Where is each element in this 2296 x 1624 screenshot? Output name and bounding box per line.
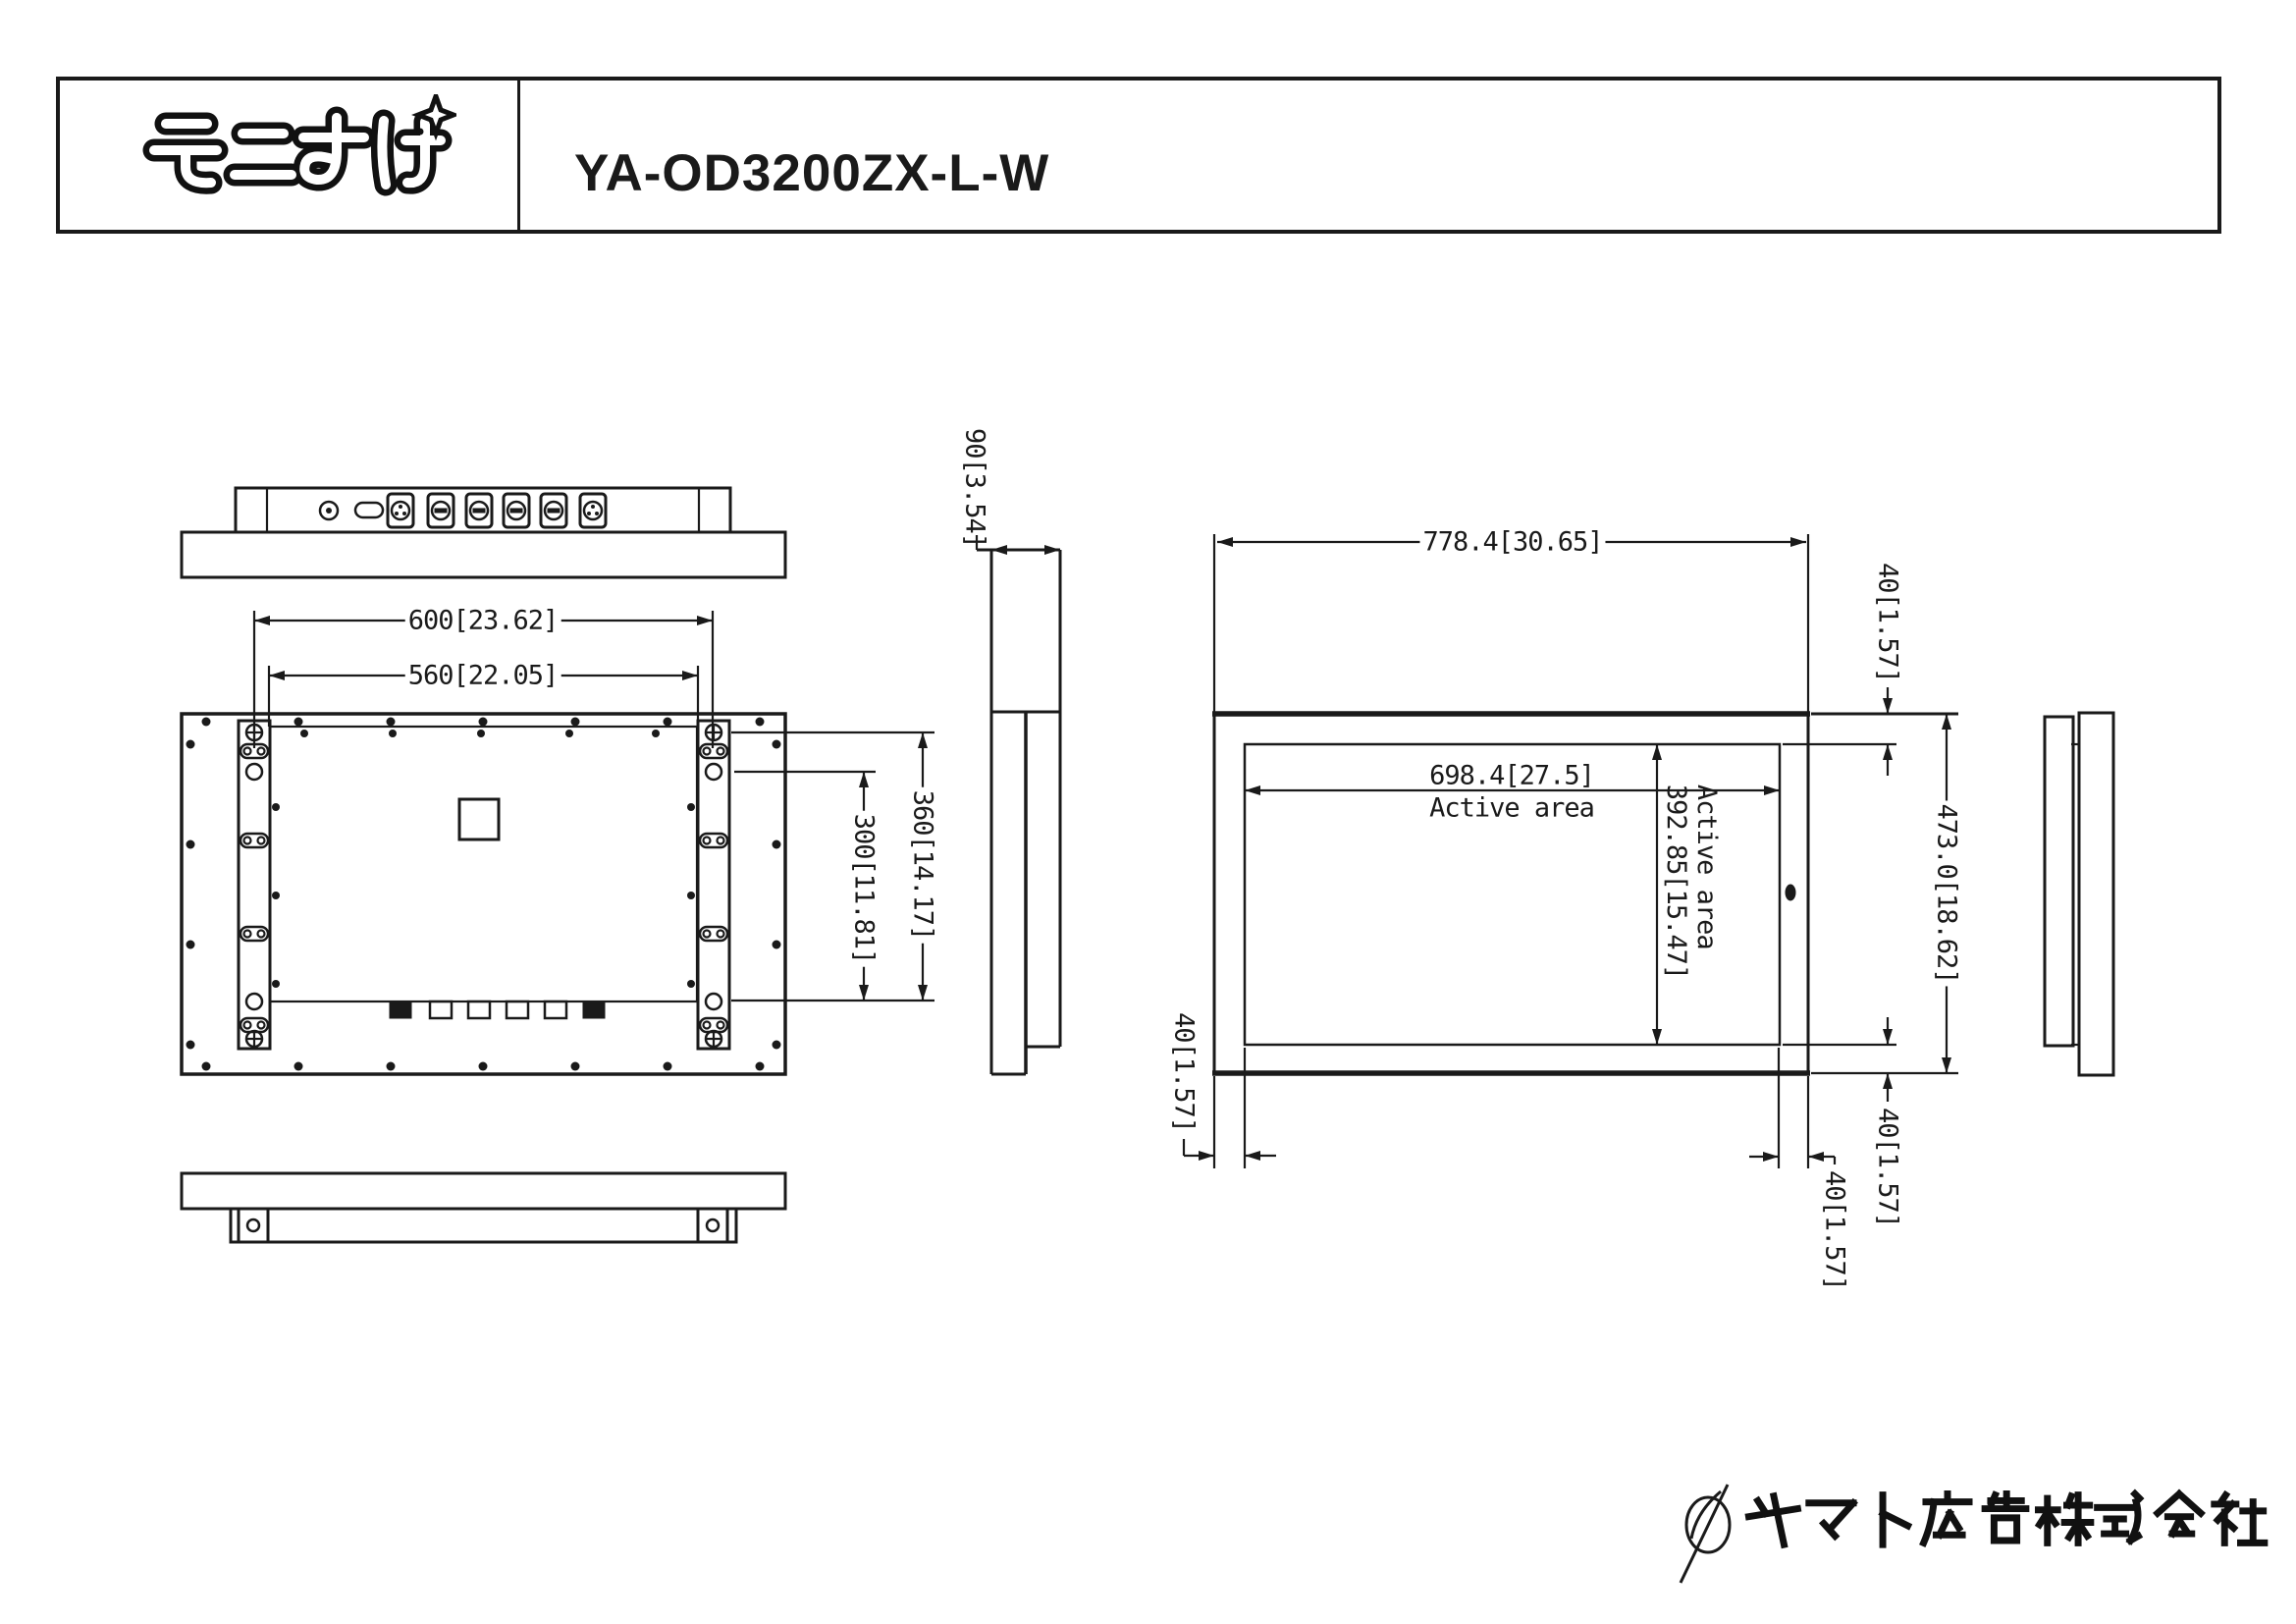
vesa-square xyxy=(459,799,499,839)
dim-label-392-block: Active area392.85[15.47] xyxy=(1661,782,1722,982)
led-window xyxy=(355,503,383,517)
dim-778 xyxy=(1214,534,1808,714)
dim-bezel-bottom xyxy=(1783,1017,1896,1102)
dim-label-40-top: 40[1.57] xyxy=(1872,560,1902,685)
dim-label-560: 560[22.05] xyxy=(405,660,561,690)
rail-hardware-left xyxy=(240,725,268,1047)
ir-sensor-icon xyxy=(1786,885,1795,900)
dim-label-40-right: 40[1.57] xyxy=(1819,1167,1849,1293)
connector-socket-6 xyxy=(580,494,606,527)
connector-socket-2 xyxy=(428,494,454,527)
rail-hardware-right xyxy=(700,725,727,1047)
dim-label-600: 600[23.62] xyxy=(405,605,561,635)
rear-view xyxy=(182,714,785,1074)
connector-socket-4 xyxy=(504,494,529,527)
company-name-glyphs xyxy=(1748,1493,2264,1544)
mount-rail-left xyxy=(239,721,270,1049)
connector-socket-5 xyxy=(541,494,566,527)
company-logo xyxy=(1681,1485,2265,1583)
dim-bezel-top xyxy=(1783,687,1896,776)
dim-label-473: 473.0[18.62] xyxy=(1931,800,1961,986)
active-area-width-label: Active area xyxy=(1426,792,1597,823)
dim-label-40-bottom: 40[1.57] xyxy=(1872,1105,1902,1230)
rear-connector-row xyxy=(390,1001,605,1018)
connector-socket-3 xyxy=(466,494,492,527)
dim-label-778: 778.4[30.65] xyxy=(1419,526,1605,557)
drawing-sheet: モニすけ YA-OD3200ZX-L-W xyxy=(0,0,2296,1624)
dim-label-300: 300[11.81] xyxy=(848,811,879,967)
dim-label-40-left: 40[1.57] xyxy=(1168,1009,1199,1135)
top-view xyxy=(182,488,785,577)
bottom-view xyxy=(182,1173,785,1242)
dim-label-90: 90[3.54] xyxy=(959,425,989,551)
dim-label-698: 698.4[27.5] xyxy=(1426,760,1597,790)
active-area-height-label: Active area xyxy=(1691,785,1722,979)
dim-label-392: 392.85[15.47] xyxy=(1661,785,1691,979)
company-mark-icon xyxy=(1681,1485,1730,1583)
mount-rail-right xyxy=(698,721,729,1049)
dim-label-360: 360[14.17] xyxy=(907,787,937,944)
right-side-view xyxy=(2045,713,2113,1075)
side-view xyxy=(977,535,1060,1074)
connector-socket-1 xyxy=(388,494,413,527)
dim-bezel-right xyxy=(1749,1048,1835,1168)
